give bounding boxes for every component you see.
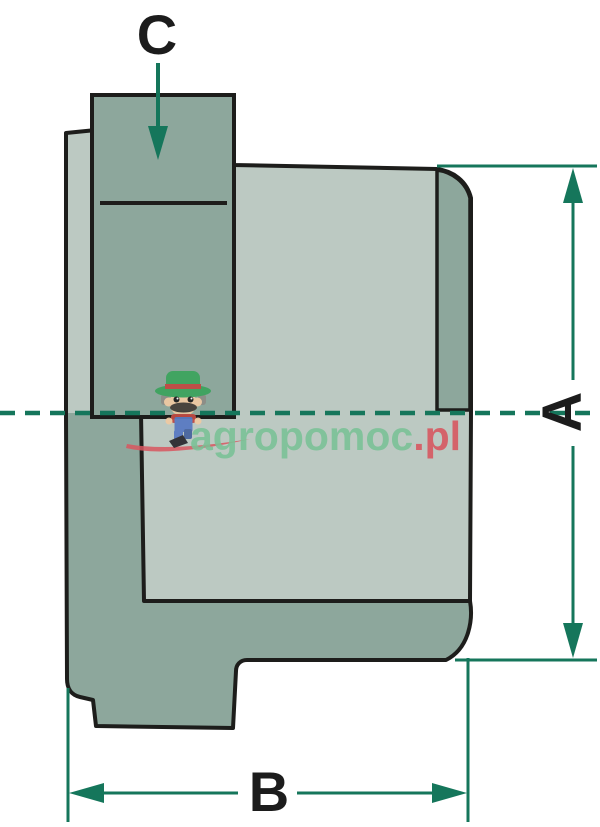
arrowhead-up-icon xyxy=(563,168,583,203)
watermark-brand-tld: .pl xyxy=(413,413,461,459)
arrowhead-left-icon xyxy=(69,783,104,803)
dimension-label-b: B xyxy=(239,762,299,822)
part-chamfer-face xyxy=(437,170,470,410)
watermark-brand: agropomoc.pl xyxy=(190,413,461,460)
dimension-label-a: A xyxy=(532,382,592,442)
dimension-label-c: C xyxy=(127,5,187,65)
technical-diagram: C A B agropomoc.pl xyxy=(0,0,600,827)
arrowhead-right-icon xyxy=(432,783,467,803)
watermark-brand-name: agropomoc xyxy=(190,413,413,459)
part-bushing xyxy=(92,95,234,417)
arrowhead-down-icon xyxy=(563,623,583,658)
